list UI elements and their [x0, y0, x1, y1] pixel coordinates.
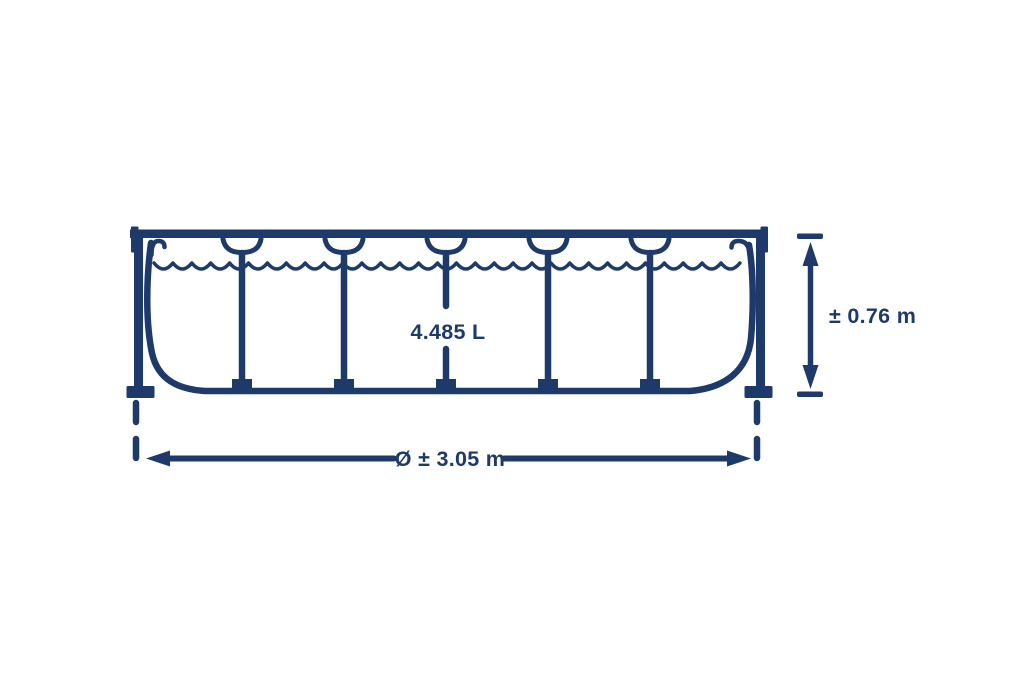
post-foot [538, 379, 558, 389]
height-label: ± 0.76 m [829, 304, 916, 328]
height-bottom-tick [797, 392, 823, 398]
right-leg [756, 238, 765, 388]
right-leg-foot [745, 386, 773, 398]
posts-group [223, 239, 669, 389]
left-leg-foot [127, 386, 155, 398]
pool-dimension-diagram: 4.485 L ± 0.76 m Ø ± 3.05 m [0, 0, 1035, 700]
diameter-label: Ø ± 3.05 m [395, 447, 505, 471]
height-arrow-up-icon [803, 242, 819, 266]
height-dimension: ± 0.76 m [797, 234, 916, 398]
diameter-arrow-right-icon [727, 451, 751, 467]
height-top-tick [797, 234, 823, 240]
height-arrow-down-icon [803, 365, 819, 389]
top-rail [130, 230, 768, 239]
post-foot [334, 379, 354, 389]
post-foot [640, 379, 660, 389]
diameter-arrow-left-icon [146, 451, 170, 467]
diameter-dimension: Ø ± 3.05 m [136, 403, 757, 471]
right-liner-hook [732, 241, 750, 255]
post-foot [232, 379, 252, 389]
left-leg [134, 238, 143, 388]
post-foot [436, 379, 456, 389]
left-liner-hook [152, 241, 165, 255]
capacity-label: 4.485 L [410, 320, 485, 344]
diagram-canvas: 4.485 L ± 0.76 m Ø ± 3.05 m [0, 0, 1035, 700]
